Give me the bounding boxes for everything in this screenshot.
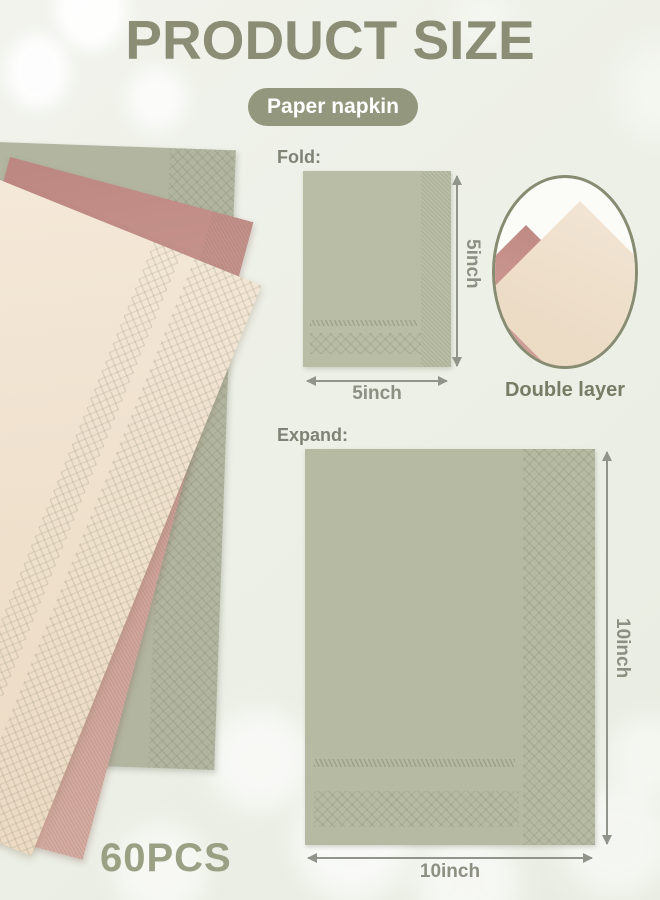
embossed-stripe: [314, 759, 515, 767]
embossed-border: [523, 449, 595, 845]
expand-height-dimension-arrow: [606, 452, 608, 844]
expand-width-dimension-arrow: [308, 857, 592, 859]
embossed-stripe: [310, 320, 417, 326]
double-layer-magnifier: [492, 175, 638, 369]
expanded-napkin-diagram: [305, 449, 595, 845]
product-type-badge: Paper napkin: [248, 88, 418, 126]
fold-section-label: Fold:: [277, 147, 321, 168]
embossed-zigzag-band: [314, 791, 519, 827]
page-title: PRODUCT SIZE: [0, 8, 660, 72]
pieces-count-label: 60PCS: [100, 836, 232, 881]
double-layer-label: Double layer: [495, 379, 635, 402]
embossed-zigzag-band: [310, 333, 421, 354]
expand-section-label: Expand:: [277, 425, 348, 446]
expand-height-value: 10inch: [611, 618, 633, 678]
fold-height-dimension-arrow: [456, 176, 458, 366]
product-size-infographic: PRODUCT SIZE Paper napkin Fold: 5inch 5i…: [0, 0, 660, 900]
folded-napkin-diagram: [303, 171, 451, 367]
expand-width-value: 10inch: [305, 861, 595, 883]
fold-height-value: 5inch: [461, 239, 483, 289]
embossed-border: [421, 171, 451, 367]
fold-width-dimension-arrow: [307, 380, 447, 382]
fold-width-value: 5inch: [303, 383, 451, 405]
